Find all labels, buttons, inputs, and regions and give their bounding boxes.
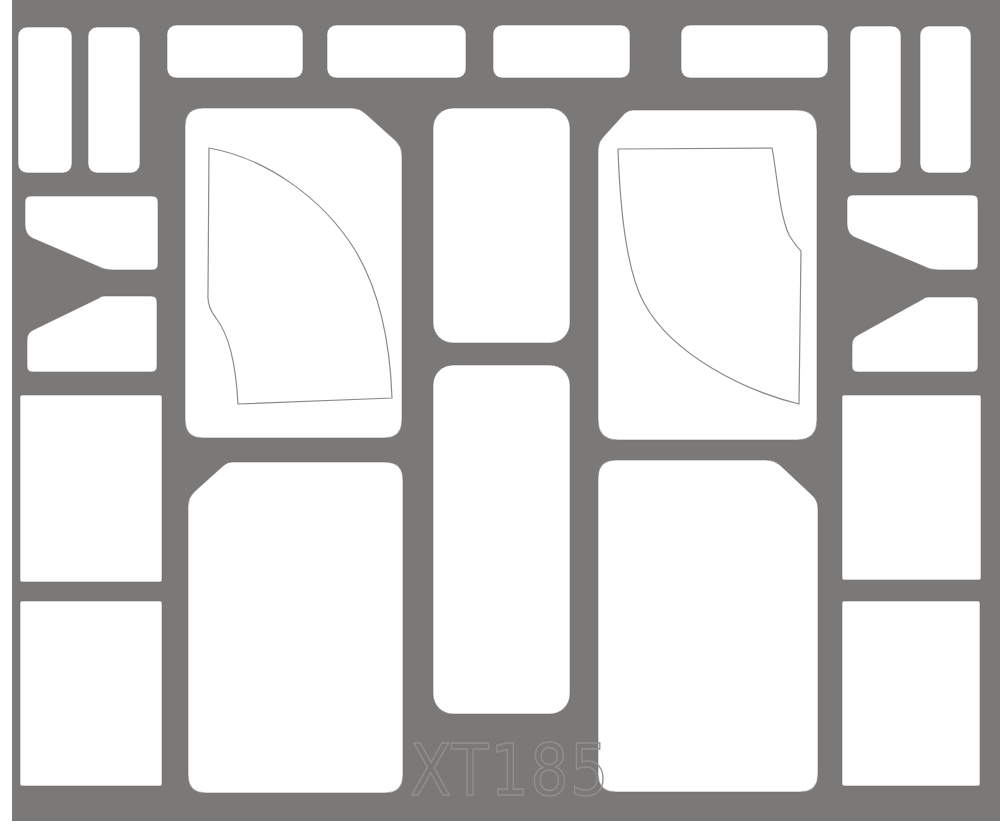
cutout-strip-top-2 bbox=[327, 25, 466, 78]
mask-sheet-svg: XT185 bbox=[0, 0, 1000, 826]
cutout-panel-upper-right bbox=[598, 110, 817, 440]
cutout-square-left-2 bbox=[20, 601, 162, 786]
cutout-square-right-2 bbox=[842, 601, 980, 786]
cutout-panel-lower-right bbox=[598, 460, 818, 792]
cutout-strip-top-3 bbox=[493, 25, 630, 78]
cutout-strip-right-a bbox=[850, 26, 901, 173]
sheet-label: XT185 bbox=[410, 728, 610, 812]
cutout-panel-lower-left bbox=[188, 462, 403, 793]
cutout-center-column-2 bbox=[433, 365, 570, 714]
cutout-strip-top-4 bbox=[681, 25, 828, 78]
cutout-square-right-1 bbox=[842, 395, 981, 580]
mask-sheet-scan: XT185 bbox=[0, 0, 1000, 826]
cutout-strip-left-a bbox=[18, 27, 72, 173]
cutout-strip-right-b bbox=[920, 26, 971, 173]
cutout-center-column-1 bbox=[433, 108, 570, 343]
cutout-square-left-1 bbox=[20, 395, 162, 582]
cutout-panel-upper-left bbox=[185, 108, 402, 438]
cutout-strip-left-b bbox=[88, 27, 140, 173]
cutout-strip-top-1 bbox=[167, 25, 303, 78]
